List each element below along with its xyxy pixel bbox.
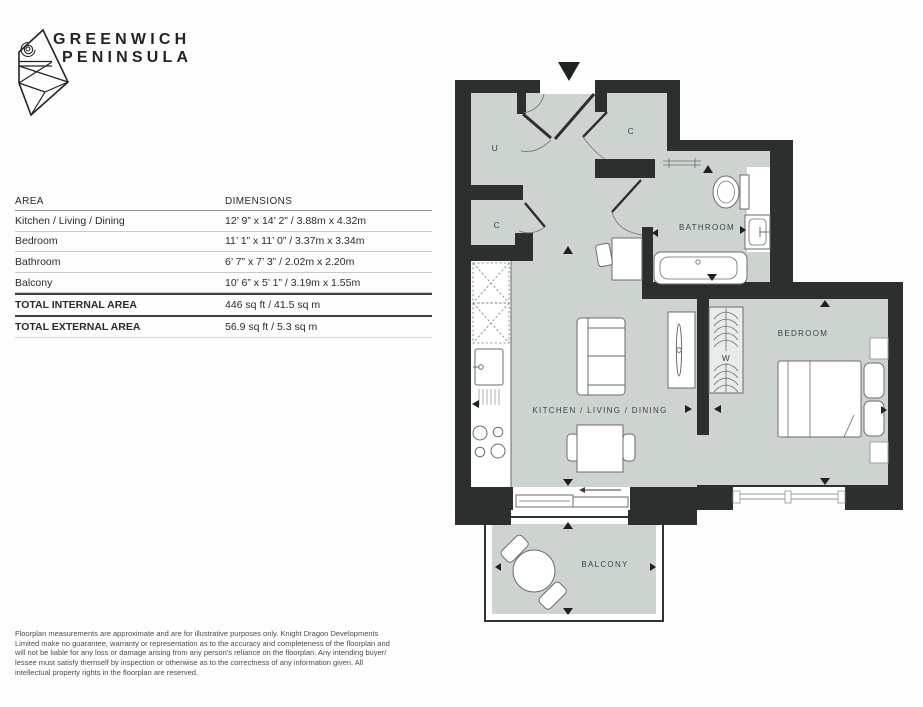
pillow	[864, 363, 884, 398]
row-dimensions: 12’ 9” x 14’ 2” / 3.88m x 4.32m	[225, 215, 432, 227]
row-dimensions: 10’ 6” x 5’ 1” / 3.19m x 1.55m	[225, 277, 432, 289]
row-area: Bedroom	[15, 235, 225, 247]
total-internal-row: TOTAL INTERNAL AREA 446 sq ft / 41.5 sq …	[15, 293, 432, 315]
toilet-icon	[713, 175, 749, 209]
bathtub-icon	[654, 252, 747, 284]
total-label: TOTAL INTERNAL AREA	[15, 299, 225, 311]
row-area: Balcony	[15, 277, 225, 289]
label-balcony: BALCONY	[581, 560, 628, 569]
disclaimer-text: Floorplan measurements are approximate a…	[15, 629, 400, 678]
tv-unit	[668, 312, 695, 388]
label-closet-top: C	[628, 126, 635, 136]
sofa	[577, 318, 625, 395]
row-dimensions: 11’ 1” x 11’ 0” / 3.37m x 3.34m	[225, 235, 432, 247]
entrance-arrow-icon	[558, 62, 580, 81]
basin-icon	[745, 215, 770, 249]
total-external-row: TOTAL EXTERNAL AREA 56.9 sq ft / 5.3 sq …	[15, 315, 432, 338]
floorplan-sheet: GREENWICH PENINSULA AREA DIMENSIONS Kitc…	[0, 0, 923, 707]
table-row: Balcony 10’ 6” x 5’ 1” / 3.19m x 1.55m	[15, 273, 432, 294]
label-wardrobe: W	[722, 353, 731, 363]
total-value: 56.9 sq ft / 5.3 sq m	[225, 321, 432, 333]
row-area: Kitchen / Living / Dining	[15, 215, 225, 227]
label-bedroom: BEDROOM	[778, 329, 828, 338]
header-dimensions: DIMENSIONS	[225, 196, 432, 207]
balcony-structure	[485, 517, 663, 621]
total-value: 446 sq ft / 41.5 sq m	[225, 299, 432, 311]
table-row: Bathroom 6’ 7” x 7’ 3” / 2.02m x 2.20m	[15, 252, 432, 273]
area-dimensions-table: AREA DIMENSIONS Kitchen / Living / Dinin…	[15, 192, 432, 338]
total-label: TOTAL EXTERNAL AREA	[15, 321, 225, 333]
row-dimensions: 6’ 7” x 7’ 3” / 2.02m x 2.20m	[225, 256, 432, 268]
table-row: Bedroom 11’ 1” x 11’ 0” / 3.37m x 3.34m	[15, 232, 432, 253]
brand-name-line2: PENINSULA	[62, 49, 192, 67]
label-utility: U	[492, 143, 499, 153]
table-row: Kitchen / Living / Dining 12’ 9” x 14’ 2…	[15, 211, 432, 232]
label-bathroom: BATHROOM	[679, 223, 735, 232]
label-closet-left: C	[494, 220, 501, 230]
kitchen-sink	[473, 349, 503, 385]
wardrobe	[709, 307, 743, 393]
header-area: AREA	[15, 196, 225, 207]
brand-name-line1: GREENWICH	[53, 31, 190, 49]
floorplan-drawing: U C C BATHROOM W BEDROOM KITCHEN / LIVIN…	[445, 55, 915, 630]
kitchen-units	[471, 261, 511, 487]
row-area: Bathroom	[15, 256, 225, 268]
table-header-row: AREA DIMENSIONS	[15, 192, 432, 211]
label-kitchen-living-dining: KITCHEN / LIVING / DINING	[532, 406, 667, 415]
